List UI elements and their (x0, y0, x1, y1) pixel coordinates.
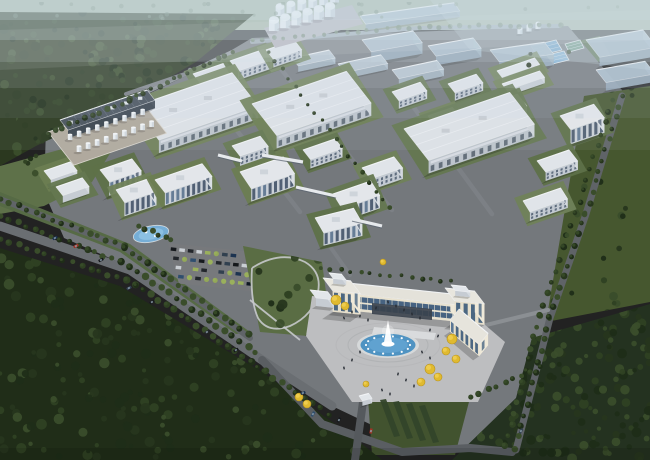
screenshot-root: aerial-rendering-industrial-park-campus (0, 0, 650, 460)
car (126, 286, 132, 291)
car (337, 417, 342, 423)
aerial-site-render: aerial-rendering-industrial-park-campus (0, 0, 650, 460)
car (149, 300, 155, 305)
